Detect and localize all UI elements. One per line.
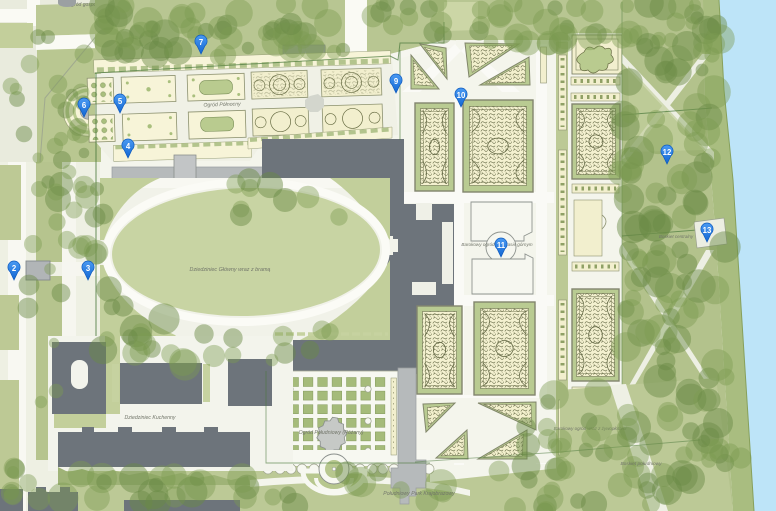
svg-text:Boskiet centralny: Boskiet centralny <box>659 234 694 239</box>
svg-text:5: 5 <box>118 97 123 106</box>
svg-text:Boskiet południowy: Boskiet południowy <box>620 461 662 467</box>
svg-text:6: 6 <box>82 101 87 110</box>
svg-text:12: 12 <box>663 148 672 157</box>
svg-text:Dziedziniec Główny wraz z bram: Dziedziniec Główny wraz z bramą <box>190 267 271 273</box>
svg-text:11: 11 <box>497 241 506 250</box>
svg-text:Dziedziniec Kuchenny: Dziedziniec Kuchenny <box>124 415 175 421</box>
svg-text:2: 2 <box>12 264 17 273</box>
svg-text:13: 13 <box>703 226 712 235</box>
svg-text:7: 7 <box>199 38 203 47</box>
svg-text:9: 9 <box>394 77 399 86</box>
svg-text:10: 10 <box>457 91 466 100</box>
svg-text:Ogród Południowy (Różany): Ogród Południowy (Różany) <box>299 430 364 436</box>
svg-text:Ogród Północny: Ogród Północny <box>203 101 241 108</box>
svg-text:3: 3 <box>86 264 91 273</box>
svg-text:Południowy Park Krajobrazowy: Południowy Park Krajobrazowy <box>383 491 455 497</box>
svg-text:4: 4 <box>126 142 131 151</box>
